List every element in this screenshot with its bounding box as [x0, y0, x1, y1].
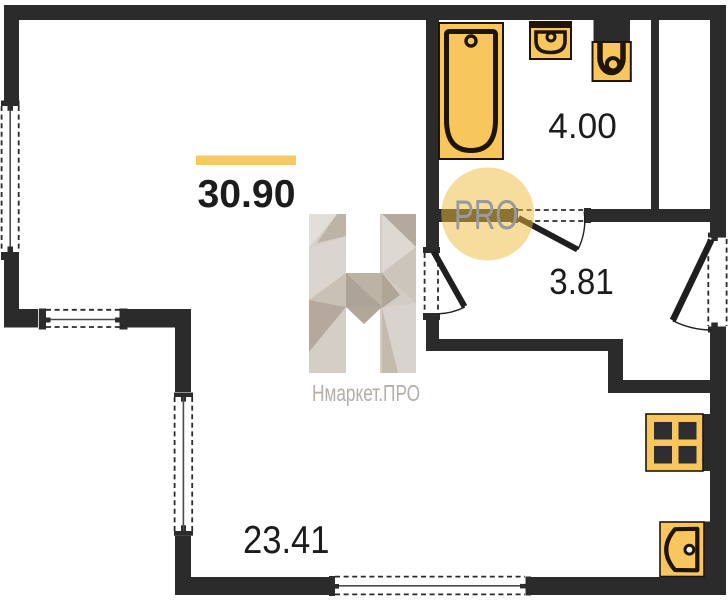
svg-text:4.00: 4.00 — [548, 107, 617, 146]
svg-text:Нмаркет.ПРО: Нмаркет.ПРО — [312, 380, 420, 406]
svg-text:3.81: 3.81 — [549, 261, 614, 302]
svg-text:30.90: 30.90 — [198, 173, 296, 216]
svg-text:23.41: 23.41 — [243, 519, 330, 562]
svg-text:PRO: PRO — [454, 191, 519, 238]
